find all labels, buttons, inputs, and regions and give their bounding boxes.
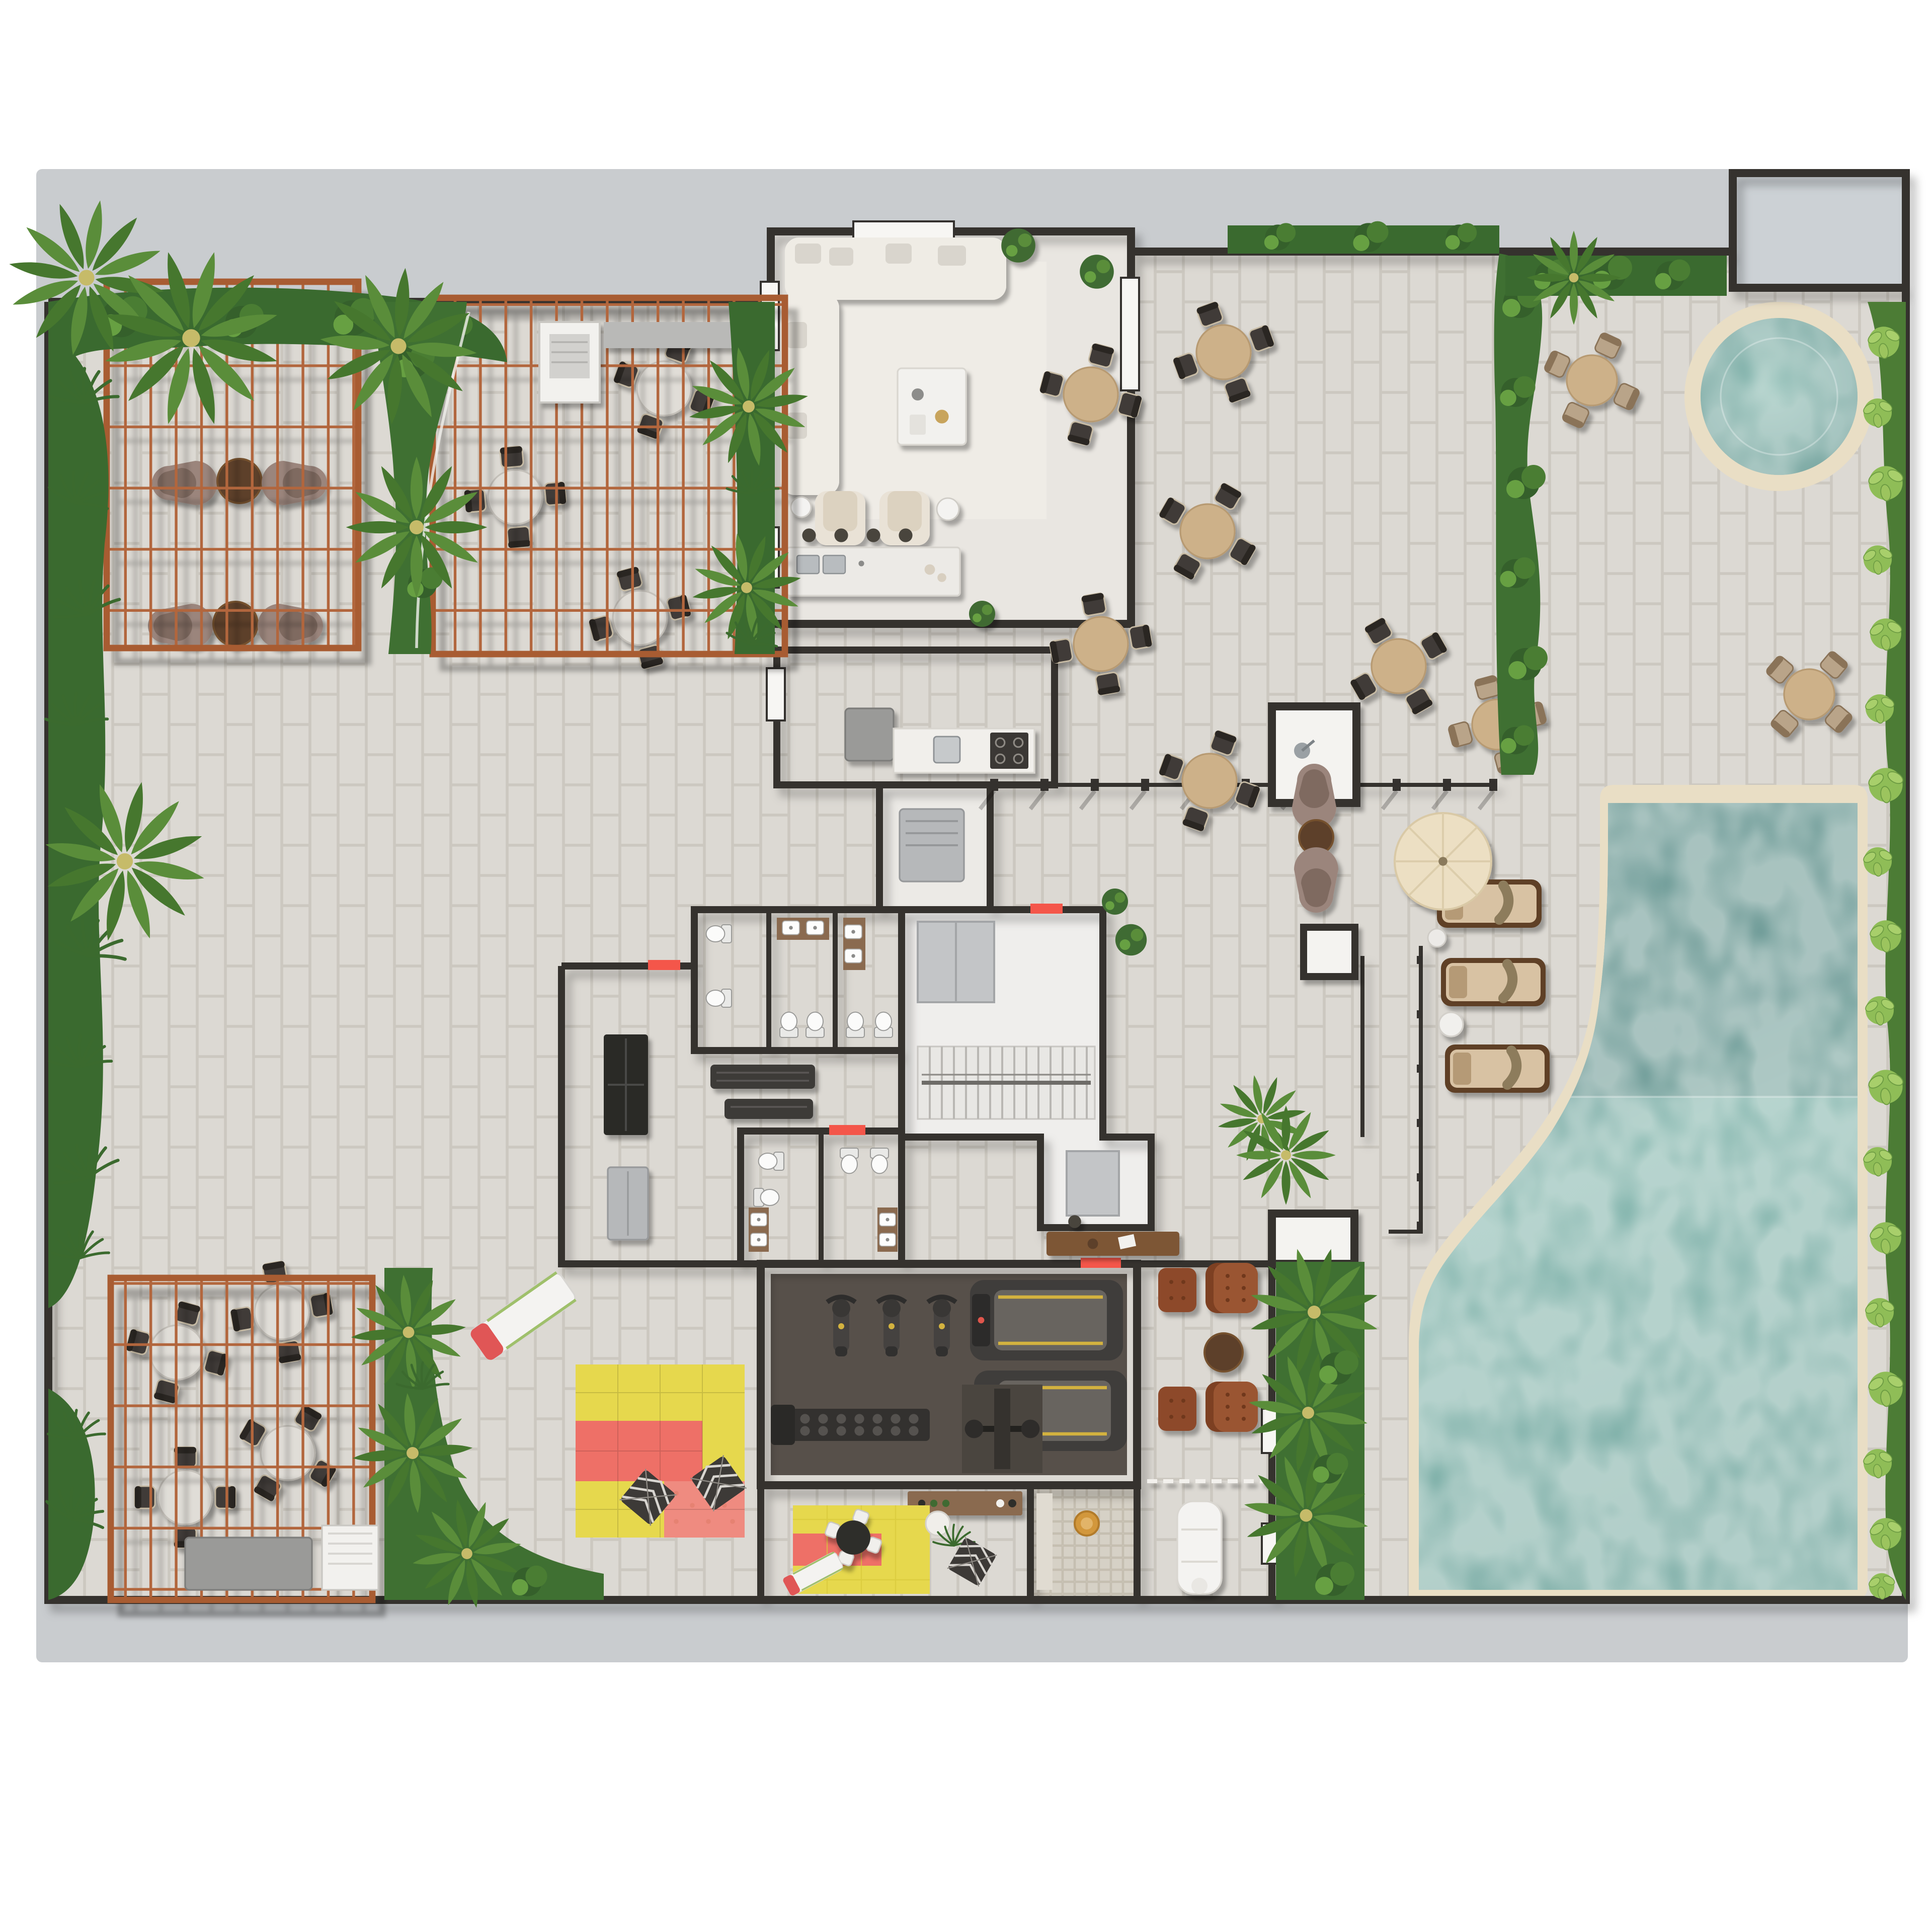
machine-room-unit (1067, 1151, 1119, 1216)
door-marker-core-south (829, 1125, 865, 1135)
lounge-window-north (853, 221, 954, 239)
garden-bench (185, 1538, 312, 1590)
leather-armchair-1 (1205, 1263, 1258, 1313)
lounger-small-table (1428, 929, 1446, 947)
lounge-window-east (1121, 278, 1139, 390)
changing-bench-1 (710, 1065, 815, 1089)
ottoman-2 (1158, 1387, 1196, 1431)
treadmill-1 (970, 1280, 1123, 1360)
bbq-sink (934, 737, 960, 763)
hot-tub (1684, 302, 1874, 491)
door-marker-gym (1081, 1258, 1121, 1268)
floor-plan (0, 0, 1932, 1932)
door-marker-core-west (648, 960, 680, 970)
indoor-plant-2 (969, 601, 995, 627)
lounger-side-table (1439, 1012, 1463, 1036)
lounge-round-table (1204, 1333, 1243, 1372)
bbq-window (767, 668, 785, 720)
potted-plant-3 (1080, 255, 1114, 289)
changing-bench-2 (725, 1099, 813, 1119)
storage-crate (322, 1525, 378, 1590)
sun-lounger-3 (1445, 1044, 1550, 1093)
sun-lounger-2 (1441, 958, 1546, 1006)
floor-plan-stage (0, 0, 1932, 1932)
indoor-plant (1001, 228, 1035, 263)
potted-plant-2 (1115, 924, 1147, 955)
coffee-table (898, 368, 966, 445)
sauna-bench (1036, 1493, 1053, 1590)
side-table-1 (791, 497, 811, 517)
void-room (1733, 173, 1906, 288)
pergola-sw (111, 1254, 378, 1600)
planter-mid (1300, 924, 1358, 980)
planter-south (1268, 1210, 1358, 1268)
ottoman-1 (1158, 1268, 1196, 1312)
utility-shaft (900, 809, 964, 881)
squat-rack (962, 1385, 1042, 1473)
fridge (845, 708, 894, 761)
pool-umbrella (1395, 813, 1491, 910)
elevator (918, 922, 994, 1002)
staircase (918, 1046, 1095, 1119)
potted-plant-1 (1102, 889, 1128, 915)
leather-armchair-2 (1205, 1382, 1258, 1432)
kitchen-island (787, 547, 960, 596)
door-marker-stairs (1030, 904, 1063, 914)
cooktop (990, 733, 1028, 769)
dumbbell-rack (771, 1405, 930, 1445)
side-table-2 (937, 498, 959, 520)
